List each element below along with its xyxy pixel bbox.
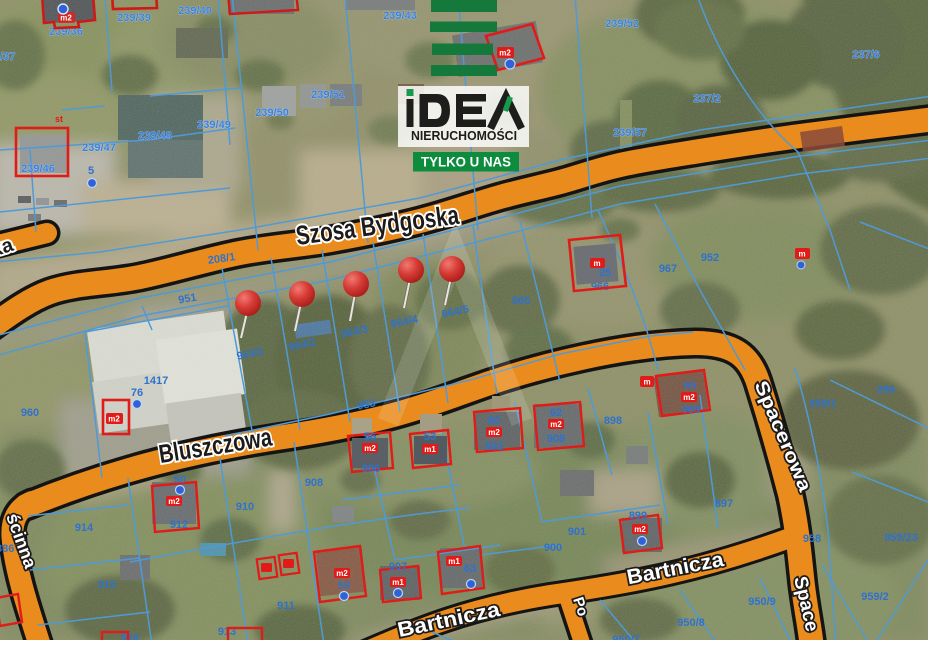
svg-text:958: 958 (803, 533, 821, 545)
svg-text:239/52: 239/52 (605, 18, 639, 30)
svg-text:916: 916 (121, 632, 139, 640)
svg-text:m2: m2 (683, 393, 695, 402)
svg-text:m2: m2 (168, 497, 180, 506)
svg-text:239/43: 239/43 (383, 10, 417, 22)
svg-text:950/8: 950/8 (677, 617, 705, 629)
svg-text:239/50: 239/50 (255, 107, 289, 119)
svg-text:237/2: 237/2 (693, 93, 721, 105)
svg-text:m: m (643, 378, 650, 387)
svg-text:900: 900 (544, 542, 562, 554)
svg-text:5: 5 (88, 165, 94, 177)
svg-text:239/48: 239/48 (138, 130, 172, 142)
svg-text:m1: m1 (448, 557, 460, 566)
svg-text:959/23: 959/23 (884, 532, 918, 544)
svg-text:237/6: 237/6 (852, 49, 880, 61)
svg-text:m1: m1 (392, 578, 404, 587)
svg-text:239/49: 239/49 (197, 119, 231, 131)
svg-text:239/46: 239/46 (21, 163, 55, 175)
svg-text:911: 911 (277, 600, 295, 612)
svg-text:239/51: 239/51 (311, 89, 345, 101)
svg-text:898: 898 (604, 415, 622, 427)
svg-text:m2: m2 (336, 569, 348, 578)
svg-text:56: 56 (364, 431, 376, 443)
svg-text:901: 901 (568, 526, 586, 538)
svg-text:899: 899 (629, 510, 647, 522)
svg-text:m2: m2 (108, 415, 120, 424)
svg-text:1417: 1417 (144, 375, 168, 387)
svg-text:25: 25 (599, 267, 611, 279)
svg-text:76: 76 (131, 387, 143, 399)
svg-text:TYLKO U NAS: TYLKO U NAS (421, 155, 511, 170)
svg-text:907: 907 (389, 561, 407, 573)
svg-text:902: 902 (485, 441, 503, 453)
svg-text:886: 886 (0, 543, 14, 555)
svg-text:914: 914 (75, 522, 94, 534)
svg-text:950/7: 950/7 (612, 634, 640, 640)
svg-text:959/1: 959/1 (809, 398, 837, 410)
svg-text:915: 915 (98, 579, 116, 591)
svg-text:st: st (55, 114, 63, 124)
svg-text:m: m (798, 250, 805, 259)
svg-text:908: 908 (305, 477, 323, 489)
svg-text:9/37: 9/37 (0, 51, 15, 63)
svg-text:m2: m2 (364, 444, 376, 453)
svg-text:m2: m2 (634, 525, 646, 534)
svg-text:239/39: 239/39 (117, 12, 151, 24)
svg-text:m2: m2 (550, 420, 562, 429)
svg-text:959/2: 959/2 (861, 591, 889, 603)
svg-text:908: 908 (547, 433, 565, 445)
svg-text:296: 296 (877, 384, 895, 396)
svg-text:53: 53 (424, 431, 436, 443)
svg-text:897: 897 (715, 498, 733, 510)
svg-text:m2: m2 (499, 49, 511, 58)
svg-text:906: 906 (362, 463, 380, 475)
svg-text:967: 967 (659, 263, 677, 275)
svg-text:239/57: 239/57 (613, 127, 647, 139)
svg-text:965: 965 (512, 295, 530, 307)
svg-text:65: 65 (684, 380, 696, 392)
svg-text:239/47: 239/47 (82, 142, 116, 154)
svg-text:62: 62 (550, 407, 562, 419)
svg-text:NIERUCHOMOŚCI: NIERUCHOMOŚCI (411, 128, 517, 143)
svg-text:50: 50 (174, 474, 186, 486)
svg-text:63: 63 (464, 563, 476, 575)
svg-text:910: 910 (236, 501, 254, 513)
svg-text:952: 952 (701, 252, 719, 264)
svg-text:m1: m1 (424, 445, 436, 454)
svg-text:239/40: 239/40 (178, 5, 212, 17)
svg-text:969: 969 (682, 404, 700, 416)
svg-text:59: 59 (338, 580, 350, 592)
svg-text:m2: m2 (488, 428, 500, 437)
svg-text:950/9: 950/9 (748, 596, 776, 608)
svg-text:m2: m2 (60, 14, 72, 23)
svg-text:960: 960 (21, 407, 39, 419)
svg-text:60: 60 (488, 415, 500, 427)
